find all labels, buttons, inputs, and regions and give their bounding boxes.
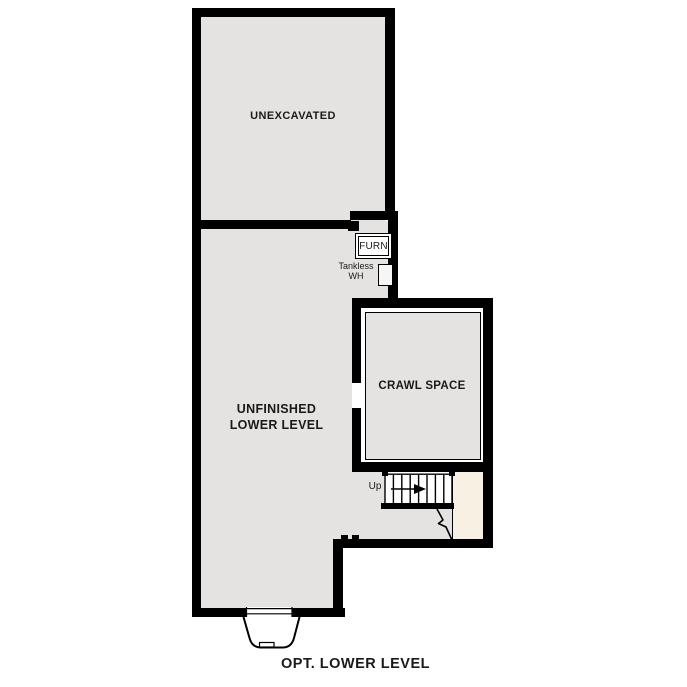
tankless-wh-symbol — [378, 264, 393, 286]
stair-treads — [385, 475, 452, 504]
wall-unexcavated-top — [192, 8, 395, 17]
unfinished-lower-level-label: UNFINISHED LOWER LEVEL — [201, 402, 352, 433]
wall-right-extension — [483, 472, 493, 548]
wall-main-left — [192, 229, 201, 617]
window-well — [244, 617, 300, 648]
wall-crawl-left-upper — [352, 298, 361, 383]
plan-title: OPT. LOWER LEVEL — [255, 655, 456, 673]
wall-divider-left — [192, 220, 351, 229]
wall-main-bottom — [192, 608, 345, 617]
door-jamb-left — [341, 535, 348, 541]
floor-bottom-section — [201, 539, 333, 609]
floor-below-stairs — [385, 509, 454, 540]
stair-landing-area — [452, 472, 484, 540]
wall-narrow-right — [333, 539, 343, 617]
wall-crawl-top — [352, 298, 493, 308]
wall-crawl-bottom — [352, 462, 493, 472]
floor-plan: FURN UNEXCAVATED UNFINISHED LOWER LEVEL … — [0, 0, 687, 687]
furnace-symbol: FURN — [355, 233, 392, 259]
wall-divider-right — [350, 211, 398, 220]
stairs-up-label: Up — [364, 481, 386, 494]
crawl-space-label: CRAWL SPACE — [361, 379, 483, 393]
furnace-label: FURN — [358, 236, 390, 257]
door-jamb-right — [352, 535, 359, 541]
wall-divider-stub — [348, 221, 359, 231]
wall-crawl-right — [483, 298, 493, 472]
tankless-wh-label: Tankless WH — [336, 261, 376, 282]
stair-arrow-head — [414, 484, 426, 494]
window-well-ledge — [260, 643, 275, 648]
unexcavated-room-label: UNEXCAVATED — [195, 110, 391, 124]
